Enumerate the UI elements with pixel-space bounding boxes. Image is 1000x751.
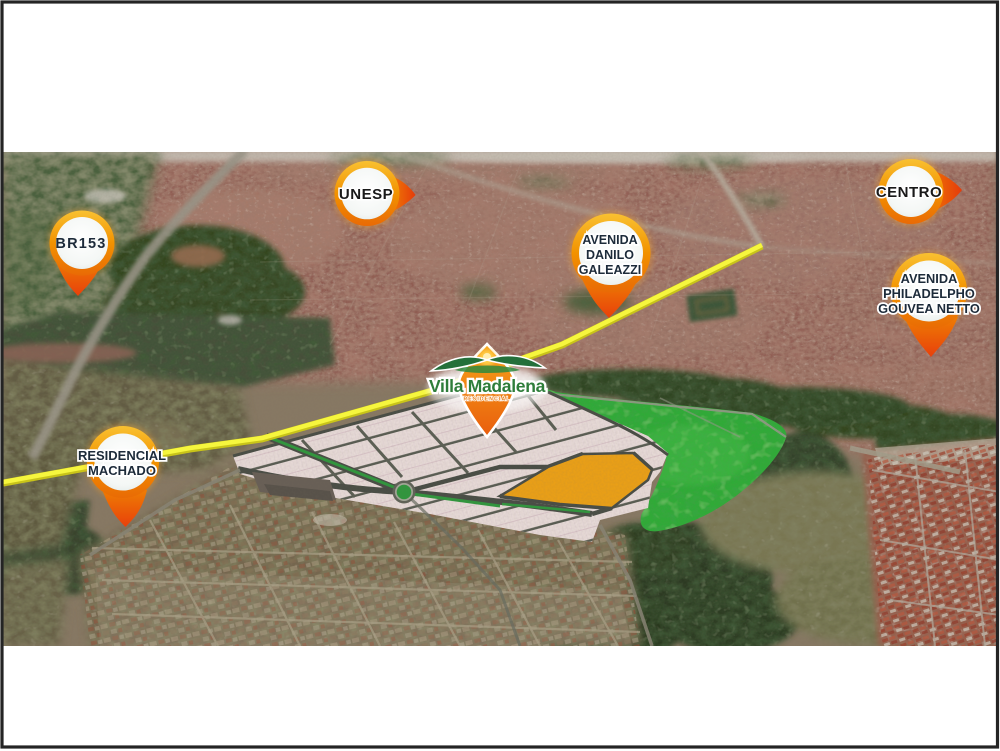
svg-text:BR153: BR153 (55, 236, 106, 252)
svg-text:DANILO: DANILO (586, 248, 634, 262)
svg-text:Villa Madalena: Villa Madalena (429, 376, 546, 396)
svg-text:PHILADELPHO: PHILADELPHO (883, 286, 975, 301)
svg-text:RESIDENCIAL: RESIDENCIAL (463, 397, 510, 403)
svg-text:CENTRO: CENTRO (876, 184, 942, 201)
svg-text:RESIDENCIAL: RESIDENCIAL (78, 448, 166, 463)
svg-text:AVENIDA: AVENIDA (901, 271, 958, 286)
svg-text:MACHADO: MACHADO (88, 463, 156, 478)
svg-text:GOUVEA NETTO: GOUVEA NETTO (878, 301, 980, 316)
svg-text:UNESP: UNESP (339, 186, 393, 203)
svg-text:GALEAZZI: GALEAZZI (579, 263, 642, 277)
svg-text:AVENIDA: AVENIDA (582, 233, 637, 247)
